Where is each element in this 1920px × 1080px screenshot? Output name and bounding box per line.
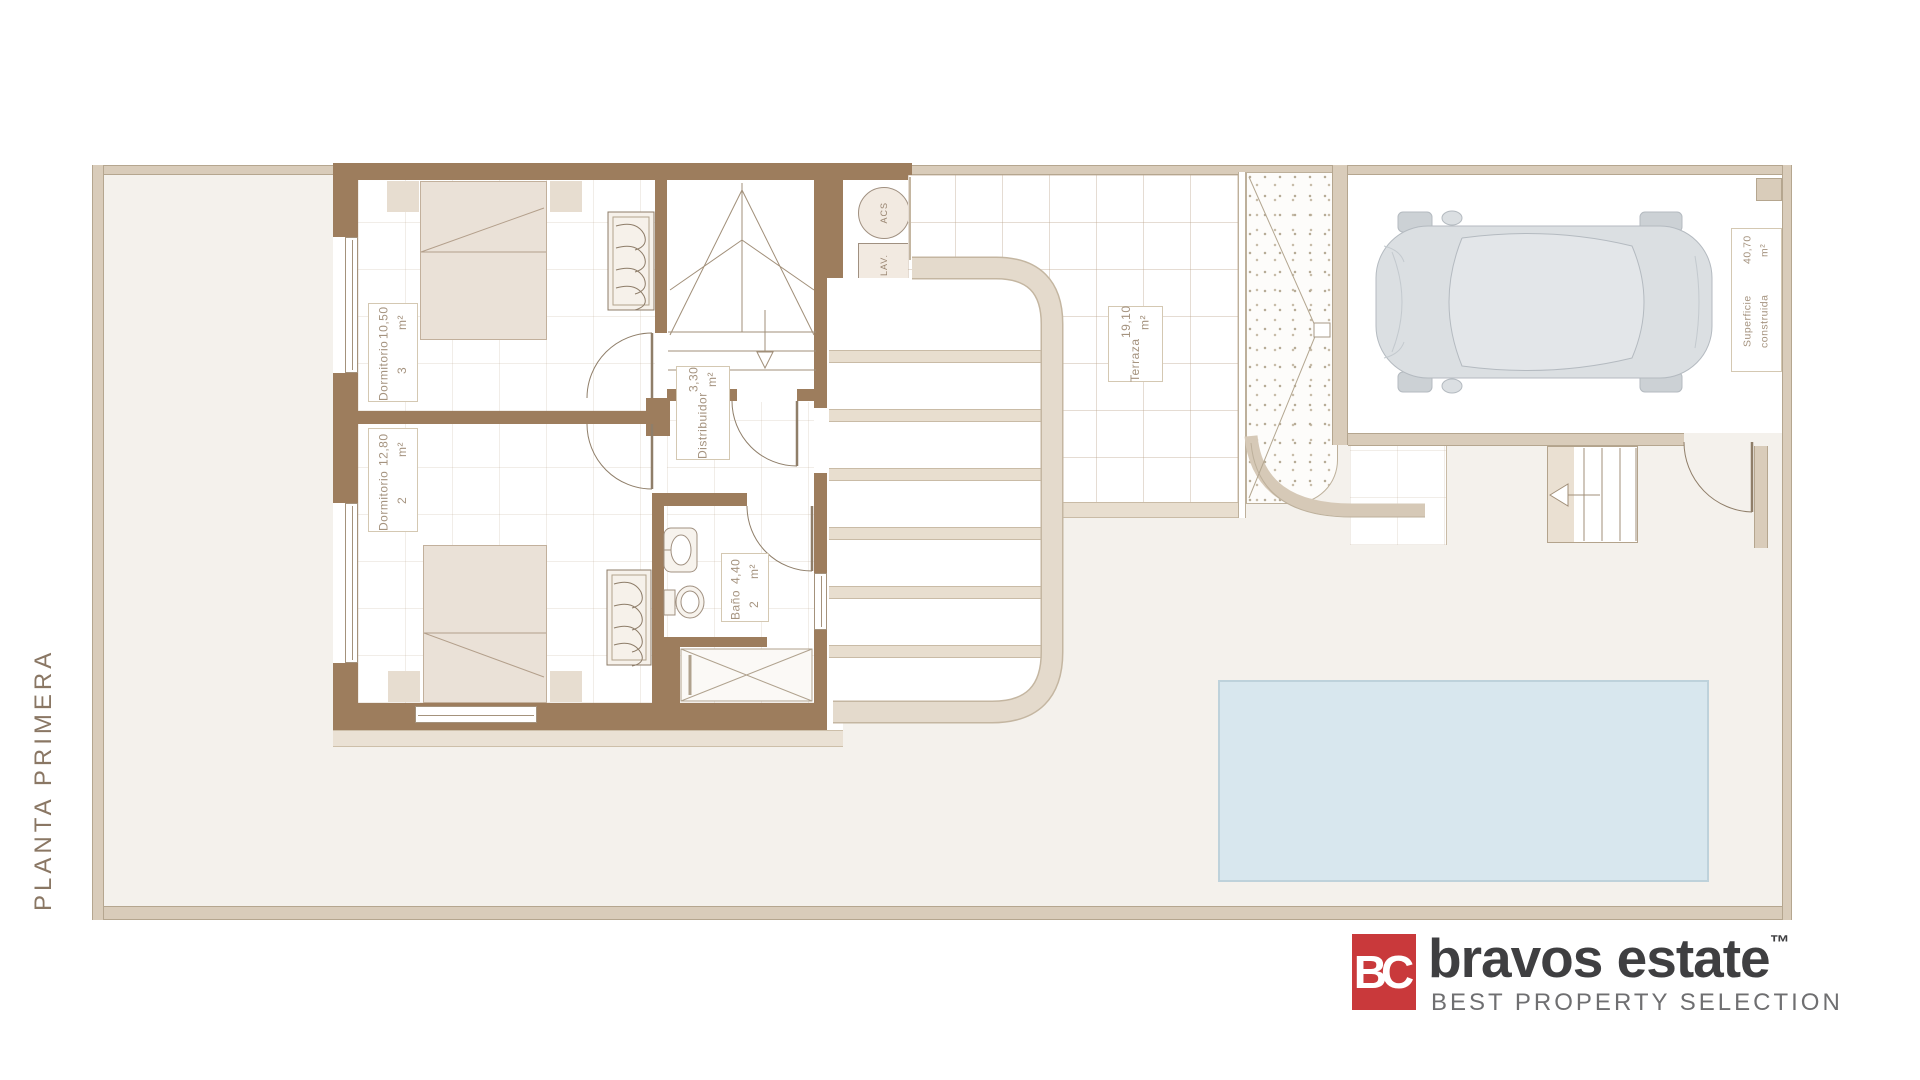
wall <box>646 398 670 436</box>
logo-mark: BC <box>1352 934 1416 1010</box>
room-area: 3,30 m² <box>684 367 721 392</box>
wall <box>358 411 650 424</box>
pool <box>1218 680 1709 882</box>
ground-floor-outline <box>333 730 843 747</box>
room-area: 19,10 m² <box>1117 306 1154 339</box>
pergola-beam <box>829 527 1043 540</box>
floor-title: PLANTA PRIMERA <box>30 642 66 917</box>
plot-boundary-left <box>92 165 104 920</box>
wall <box>664 493 747 506</box>
wall <box>797 389 814 401</box>
logo-tagline: BEST PROPERTY SELECTION <box>1431 989 1843 1017</box>
patio-tiles <box>1350 446 1447 545</box>
plot-boundary-right <box>1782 165 1792 920</box>
gravel-bed <box>1246 172 1338 504</box>
nightstand <box>550 671 582 702</box>
window <box>814 573 827 630</box>
acs-tank-icon: ACS <box>858 187 910 239</box>
room-label-terraza: Terraza 19,10 m² <box>1108 306 1163 382</box>
bed-icon <box>423 545 547 703</box>
lav-label: LAV. <box>879 254 889 276</box>
room-name: Dormitorio 3 <box>374 341 411 401</box>
acs-label: ACS <box>879 202 889 224</box>
bed-icon <box>420 181 547 340</box>
room-label-bano2: Baño 2 4,40 m² <box>721 553 769 622</box>
terrace-edge <box>1043 502 1238 518</box>
wall <box>662 637 767 647</box>
terrace-divider <box>1238 172 1246 518</box>
wall <box>333 703 827 730</box>
logo-trademark: ™ <box>1770 932 1790 954</box>
room-name: Superficie construida <box>1740 271 1774 371</box>
pergola-beam <box>829 645 1043 658</box>
wall <box>814 630 827 705</box>
room-area: 4,40 m² <box>726 554 763 589</box>
room-name: Dormitorio 2 <box>374 471 411 531</box>
floor-plan-page: PLANTA PRIMERA ACS LAV. <box>0 0 1920 1080</box>
room-label-dormitorio2: Dormitorio 2 12,80 m² <box>368 428 418 532</box>
window <box>415 706 537 723</box>
wall <box>333 163 912 180</box>
wall <box>814 180 827 408</box>
nightstand <box>388 671 420 702</box>
wall <box>655 180 667 333</box>
wall-stub <box>1754 446 1768 548</box>
pergola-floor <box>827 278 1043 704</box>
logo-brand-text: bravos estate <box>1428 927 1770 989</box>
label-superficie-construida: Superficie construida 40,70 m² <box>1731 228 1782 372</box>
room-name: Terraza <box>1126 339 1145 383</box>
nightstand <box>550 181 582 212</box>
wall <box>662 647 680 705</box>
pergola-beam <box>829 586 1043 599</box>
room-name: Baño 2 <box>726 589 763 621</box>
wall <box>333 180 358 237</box>
garage-court <box>1348 175 1782 433</box>
wall <box>333 373 358 503</box>
pergola-beam <box>829 409 1043 422</box>
room-area: 40,70 m² <box>1740 229 1774 271</box>
plot-boundary-bottom <box>92 906 1792 920</box>
nightstand <box>387 181 419 212</box>
stairs-landing <box>1548 447 1574 542</box>
wall <box>814 473 827 573</box>
window <box>345 237 358 373</box>
logo-monogram: BC <box>1354 945 1414 999</box>
window <box>345 503 358 663</box>
corner-block <box>1756 178 1782 201</box>
logo-brand: bravos estate™ <box>1428 926 1790 990</box>
court-side-band <box>1332 165 1348 445</box>
room-area: 12,80 m² <box>374 429 411 471</box>
room-label-distribuidor: Distribuidor 3,30 m² <box>676 366 730 460</box>
room-name: Distribuidor <box>694 392 713 459</box>
room-label-dormitorio3: Dormitorio 3 10,50 m² <box>368 303 418 402</box>
pergola-beam <box>829 468 1043 481</box>
pergola-beam <box>829 350 1043 363</box>
court-bottom-wall <box>1348 433 1684 446</box>
room-area: 10,50 m² <box>374 304 411 341</box>
